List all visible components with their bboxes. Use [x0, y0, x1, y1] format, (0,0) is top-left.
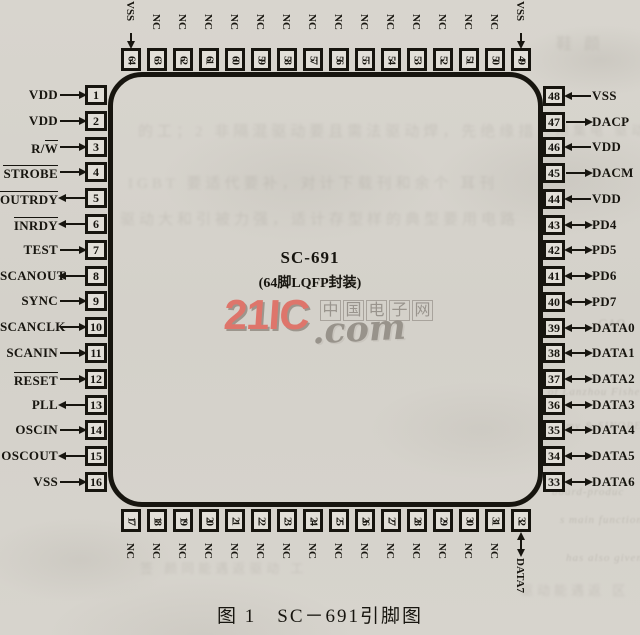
pin-arrow-out-icon	[60, 194, 85, 202]
arrow-head-icon	[58, 220, 66, 228]
pin-number: 58	[282, 56, 293, 63]
pin-label-SCANOUT: SCANOUT	[0, 269, 58, 282]
pin-label-NC: NC	[358, 543, 369, 559]
pin-label-NC: NC	[306, 14, 317, 30]
pin-box-10: 10	[85, 317, 107, 337]
pin-box-57: 57	[303, 48, 323, 71]
arrow-head-icon	[585, 401, 593, 409]
pin-box-21: 21	[225, 509, 245, 532]
pin-arrow-in-icon	[517, 33, 525, 47]
pin-number: 26	[360, 517, 371, 524]
arrow-head-icon	[79, 246, 87, 254]
pin-label-NC: NC	[410, 543, 421, 559]
pin-box-18: 18	[147, 509, 167, 532]
pin-box-37: 37	[543, 369, 565, 389]
pin-label-VDD: VDD	[0, 114, 58, 127]
pin-label-NC: NC	[202, 543, 213, 559]
pin-number: 63	[152, 56, 163, 63]
chip-name: SC-691	[220, 248, 400, 268]
pin-box-36: 36	[543, 395, 565, 415]
pin-box-39: 39	[543, 318, 565, 338]
pin-box-28: 28	[407, 509, 427, 532]
arrow-head-icon	[564, 349, 572, 357]
pin-box-13: 13	[85, 395, 107, 415]
pin-arrow-bi-icon	[566, 452, 591, 460]
pin-number: 22	[256, 517, 267, 524]
pin-label-DATA4: DATA4	[592, 423, 635, 436]
pin-box-61: 61	[199, 48, 219, 71]
pin-box-31: 31	[485, 509, 505, 532]
pin-box-41: 41	[543, 266, 565, 286]
pin-label-VSS: VSS	[514, 1, 525, 21]
arrow-head-icon	[79, 349, 87, 357]
arrow-head-icon	[79, 478, 87, 486]
pin-label-DATA1: DATA1	[592, 346, 635, 359]
pin-label-PD7: PD7	[592, 295, 617, 308]
pin-box-58: 58	[277, 48, 297, 71]
pin-number: 55	[360, 56, 371, 63]
pin-label-NC: NC	[150, 14, 161, 30]
pin-box-51: 51	[459, 48, 479, 71]
pin-number: 62	[178, 56, 189, 63]
pin-box-3: 3	[85, 137, 107, 157]
pin-box-46: 46	[543, 137, 565, 157]
pin-label-RESET: RESET	[0, 372, 58, 387]
pin-arrow-out-icon	[566, 169, 591, 177]
arrow-head-icon	[517, 549, 525, 557]
pin-label-VDD: VDD	[592, 140, 621, 153]
pin-label-DACM: DACM	[592, 166, 634, 179]
arrow-head-icon	[585, 452, 593, 460]
pin-label-NC: NC	[436, 543, 447, 559]
arrow-head-icon	[79, 117, 87, 125]
pin-number: 30	[464, 517, 475, 524]
arrow-head-icon	[585, 169, 593, 177]
pin-box-4: 4	[85, 162, 107, 182]
pin-box-55: 55	[355, 48, 375, 71]
pin-box-1: 1	[85, 85, 107, 105]
arrow-head-icon	[564, 324, 572, 332]
arrow-head-icon	[564, 426, 572, 434]
pin-label-NC: NC	[488, 543, 499, 559]
pin-label-NC: NC	[332, 543, 343, 559]
pin-box-44: 44	[543, 189, 565, 209]
pin-label-OSCIN: OSCIN	[0, 423, 58, 436]
pin-arrow-in-icon	[60, 478, 85, 486]
pin-box-27: 27	[381, 509, 401, 532]
arrow-head-icon	[585, 246, 593, 254]
pin-number: 28	[412, 517, 423, 524]
pin-label-DATA6: DATA6	[592, 475, 635, 488]
pin-arrow-in-icon	[60, 375, 85, 383]
pin-arrow-bi-icon	[566, 401, 591, 409]
arrow-head-icon	[564, 92, 572, 100]
pin-label-NC: NC	[462, 543, 473, 559]
ghost-text: 签 颜同能遇返驱动 工	[140, 558, 308, 577]
arrow-head-icon	[564, 478, 572, 486]
pin-label-TEST: TEST	[0, 243, 58, 256]
pin-box-24: 24	[303, 509, 323, 532]
pin-label-OUTRDY: OUTRDY	[0, 191, 58, 206]
pin-label-DATA3: DATA3	[592, 398, 635, 411]
pin-label-NC: NC	[332, 14, 343, 30]
pin-label-NC: NC	[254, 543, 265, 559]
pin-box-40: 40	[543, 292, 565, 312]
pin-number: 24	[308, 517, 319, 524]
pin-arrow-bi-icon	[566, 246, 591, 254]
pin-box-29: 29	[433, 509, 453, 532]
pin-number: 64	[126, 56, 137, 63]
pin-box-43: 43	[543, 215, 565, 235]
arrow-head-icon	[564, 195, 572, 203]
pin-label-R-W: R/W	[0, 140, 58, 155]
pin-label-NC: NC	[254, 14, 265, 30]
arrow-head-icon	[564, 298, 572, 306]
pin-box-19: 19	[173, 509, 193, 532]
pin-box-9: 9	[85, 291, 107, 311]
pin-box-30: 30	[459, 509, 479, 532]
pin-number: 31	[490, 517, 501, 524]
arrow-head-icon	[585, 375, 593, 383]
pin-label-NC: NC	[306, 543, 317, 559]
pin-arrow-bi-icon	[566, 349, 591, 357]
pin-number: 49	[516, 56, 527, 63]
arrow-head-icon	[79, 91, 87, 99]
arrow-head-icon	[79, 426, 87, 434]
pin-arrow-in-icon	[60, 91, 85, 99]
arrow-head-icon	[79, 297, 87, 305]
pin-number: 56	[334, 56, 345, 63]
arrow-head-icon	[564, 221, 572, 229]
pin-box-48: 48	[543, 86, 565, 106]
pin-label-NC: NC	[176, 14, 187, 30]
arrow-head-icon	[58, 272, 66, 280]
ghost-text: 鞋 颜	[556, 30, 604, 54]
pin-arrow-in-icon	[60, 143, 85, 151]
pin-arrow-in-icon	[60, 246, 85, 254]
pin-box-33: 33	[543, 472, 565, 492]
pin-label-NC: NC	[280, 14, 291, 30]
chip-package: (64脚LQFP封装)	[200, 272, 420, 292]
pin-number: 53	[412, 56, 423, 63]
pin-box-15: 15	[85, 446, 107, 466]
pin-arrow-out-icon	[60, 401, 85, 409]
pin-box-34: 34	[543, 446, 565, 466]
arrow-head-icon	[79, 323, 87, 331]
pin-box-23: 23	[277, 509, 297, 532]
arrow-head-icon	[517, 41, 525, 49]
pin-number: 23	[282, 517, 293, 524]
pin-label-SCANIN: SCANIN	[0, 346, 58, 359]
pin-label-DATA7: DATA7	[514, 558, 525, 593]
figure-caption: 图 1 SC－691引脚图	[0, 601, 640, 628]
pin-arrow-in-icon	[566, 92, 591, 100]
pin-arrow-in-icon	[566, 195, 591, 203]
pin-number: 20	[204, 517, 215, 524]
pin-box-50: 50	[485, 48, 505, 71]
pin-label-PD5: PD5	[592, 243, 617, 256]
pin-label-DATA2: DATA2	[592, 372, 635, 385]
pin-box-17: 17	[121, 509, 141, 532]
pin-arrow-bi-icon	[566, 298, 591, 306]
pin-box-59: 59	[251, 48, 271, 71]
pin-label-NC: NC	[228, 14, 239, 30]
pin-number: 32	[516, 517, 527, 524]
pin-box-25: 25	[329, 509, 349, 532]
pin-label-NC: NC	[150, 543, 161, 559]
pin-label-NC: NC	[202, 14, 213, 30]
pin-box-32: 32	[511, 509, 531, 532]
pin-box-22: 22	[251, 509, 271, 532]
pin-box-8: 8	[85, 266, 107, 286]
arrow-head-icon	[585, 298, 593, 306]
pin-label-NC: NC	[124, 543, 135, 559]
pin-label-PD6: PD6	[592, 269, 617, 282]
arrow-head-icon	[564, 246, 572, 254]
pin-box-14: 14	[85, 420, 107, 440]
arrow-head-icon	[585, 272, 593, 280]
arrow-head-icon	[585, 478, 593, 486]
pin-label-NC: NC	[488, 14, 499, 30]
pin-number: 50	[490, 56, 501, 63]
pin-box-38: 38	[543, 343, 565, 363]
pin-arrow-bi-icon	[566, 375, 591, 383]
pin-arrow-out-icon	[60, 220, 85, 228]
arrow-head-icon	[79, 375, 87, 383]
pin-label-NC: NC	[228, 543, 239, 559]
pin-arrow-in-icon	[60, 426, 85, 434]
pin-label-DATA5: DATA5	[592, 449, 635, 462]
arrow-head-icon	[517, 532, 525, 540]
arrow-head-icon	[564, 143, 572, 151]
pin-label-NC: NC	[462, 14, 473, 30]
pin-label-STROBE: STROBE	[0, 165, 58, 180]
pin-box-7: 7	[85, 240, 107, 260]
pin-label-OSCOUT: OSCOUT	[0, 449, 58, 462]
ghost-text: s main functions	[560, 514, 640, 526]
pin-arrow-bi-icon	[566, 221, 591, 229]
arrow-head-icon	[58, 452, 66, 460]
arrow-head-icon	[585, 118, 593, 126]
pin-number: 52	[438, 56, 449, 63]
pin-label-NC: NC	[436, 14, 447, 30]
arrow-head-icon	[585, 324, 593, 332]
pin-box-52: 52	[433, 48, 453, 71]
pin-number: 29	[438, 517, 449, 524]
pin-box-2: 2	[85, 111, 107, 131]
pin-arrow-in-icon	[60, 349, 85, 357]
pin-label-NC: NC	[358, 14, 369, 30]
pin-number: 17	[126, 517, 137, 524]
pinout-figure: 的工；2 非隔混驱动要且需法驱动焊，先绝缘措IGBT 要适代要补，对计下载刊和余…	[0, 0, 640, 635]
pin-number: 51	[464, 56, 475, 63]
pin-arrow-in-icon	[60, 168, 85, 176]
pin-label-SYNC: SYNC	[0, 294, 58, 307]
arrow-head-icon	[585, 349, 593, 357]
pin-box-49: 49	[511, 48, 531, 71]
pin-number: 25	[334, 517, 345, 524]
pin-number: 57	[308, 56, 319, 63]
pin-arrow-bi-icon	[566, 272, 591, 280]
pin-box-42: 42	[543, 240, 565, 260]
pin-number: 59	[256, 56, 267, 63]
pin-box-20: 20	[199, 509, 219, 532]
pin-box-56: 56	[329, 48, 349, 71]
pin-number: 61	[204, 56, 215, 63]
pin-label-DATA0: DATA0	[592, 321, 635, 334]
pin-label-VDD: VDD	[0, 88, 58, 101]
arrow-head-icon	[79, 143, 87, 151]
ghost-text: 驱动能遇返 区	[520, 580, 629, 599]
pin-box-26: 26	[355, 509, 375, 532]
pin-arrow-bi-icon	[566, 426, 591, 434]
arrow-head-icon	[58, 401, 66, 409]
arrow-head-icon	[79, 168, 87, 176]
pin-arrow-in-icon	[60, 297, 85, 305]
pin-number: 54	[386, 56, 397, 63]
pin-label-PD4: PD4	[592, 218, 617, 231]
pin-box-6: 6	[85, 214, 107, 234]
pin-arrow-out-icon	[60, 272, 85, 280]
arrow-head-icon	[585, 221, 593, 229]
pin-label-NC: NC	[384, 543, 395, 559]
pin-box-12: 12	[85, 369, 107, 389]
pin-label-PLL: PLL	[0, 398, 58, 411]
arrow-head-icon	[585, 426, 593, 434]
pin-number: 18	[152, 517, 163, 524]
pin-number: 19	[178, 517, 189, 524]
pin-arrow-in-icon	[127, 33, 135, 47]
pin-label-VSS: VSS	[0, 475, 58, 488]
arrow-head-icon	[564, 272, 572, 280]
pin-arrow-in-icon	[566, 143, 591, 151]
pin-box-35: 35	[543, 420, 565, 440]
arrow-head-icon	[564, 452, 572, 460]
ghost-text: has also given	[566, 552, 640, 564]
pin-label-NC: NC	[410, 14, 421, 30]
arrow-head-icon	[564, 401, 572, 409]
pin-label-SCANCLK: SCANCLK	[0, 320, 58, 333]
pin-box-54: 54	[381, 48, 401, 71]
arrow-head-icon	[127, 41, 135, 49]
pin-box-16: 16	[85, 472, 107, 492]
arrow-head-icon	[564, 375, 572, 383]
pin-label-VDD: VDD	[592, 192, 621, 205]
pin-number: 60	[230, 56, 241, 63]
pin-box-63: 63	[147, 48, 167, 71]
pin-label-DACP: DACP	[592, 115, 629, 128]
pin-label-INRDY: INRDY	[0, 217, 58, 232]
pin-arrow-in-icon	[60, 323, 85, 331]
pin-arrow-bi-icon	[566, 324, 591, 332]
pin-label-NC: NC	[280, 543, 291, 559]
pin-label-VSS: VSS	[592, 89, 617, 102]
pin-box-62: 62	[173, 48, 193, 71]
pin-arrow-out-icon	[566, 118, 591, 126]
pin-arrow-out-icon	[60, 452, 85, 460]
pin-box-45: 45	[543, 163, 565, 183]
pin-arrow-bi-icon	[517, 534, 525, 555]
pin-arrow-in-icon	[60, 117, 85, 125]
pin-box-64: 64	[121, 48, 141, 71]
pin-number: 27	[386, 517, 397, 524]
pin-box-47: 47	[543, 112, 565, 132]
pin-label-NC: NC	[176, 543, 187, 559]
pin-label-VSS: VSS	[124, 1, 135, 21]
pin-box-60: 60	[225, 48, 245, 71]
arrow-head-icon	[58, 194, 66, 202]
pin-arrow-bi-icon	[566, 478, 591, 486]
pin-box-53: 53	[407, 48, 427, 71]
pin-box-11: 11	[85, 343, 107, 363]
pin-box-5: 5	[85, 188, 107, 208]
pin-label-NC: NC	[384, 14, 395, 30]
pin-number: 21	[230, 517, 241, 524]
